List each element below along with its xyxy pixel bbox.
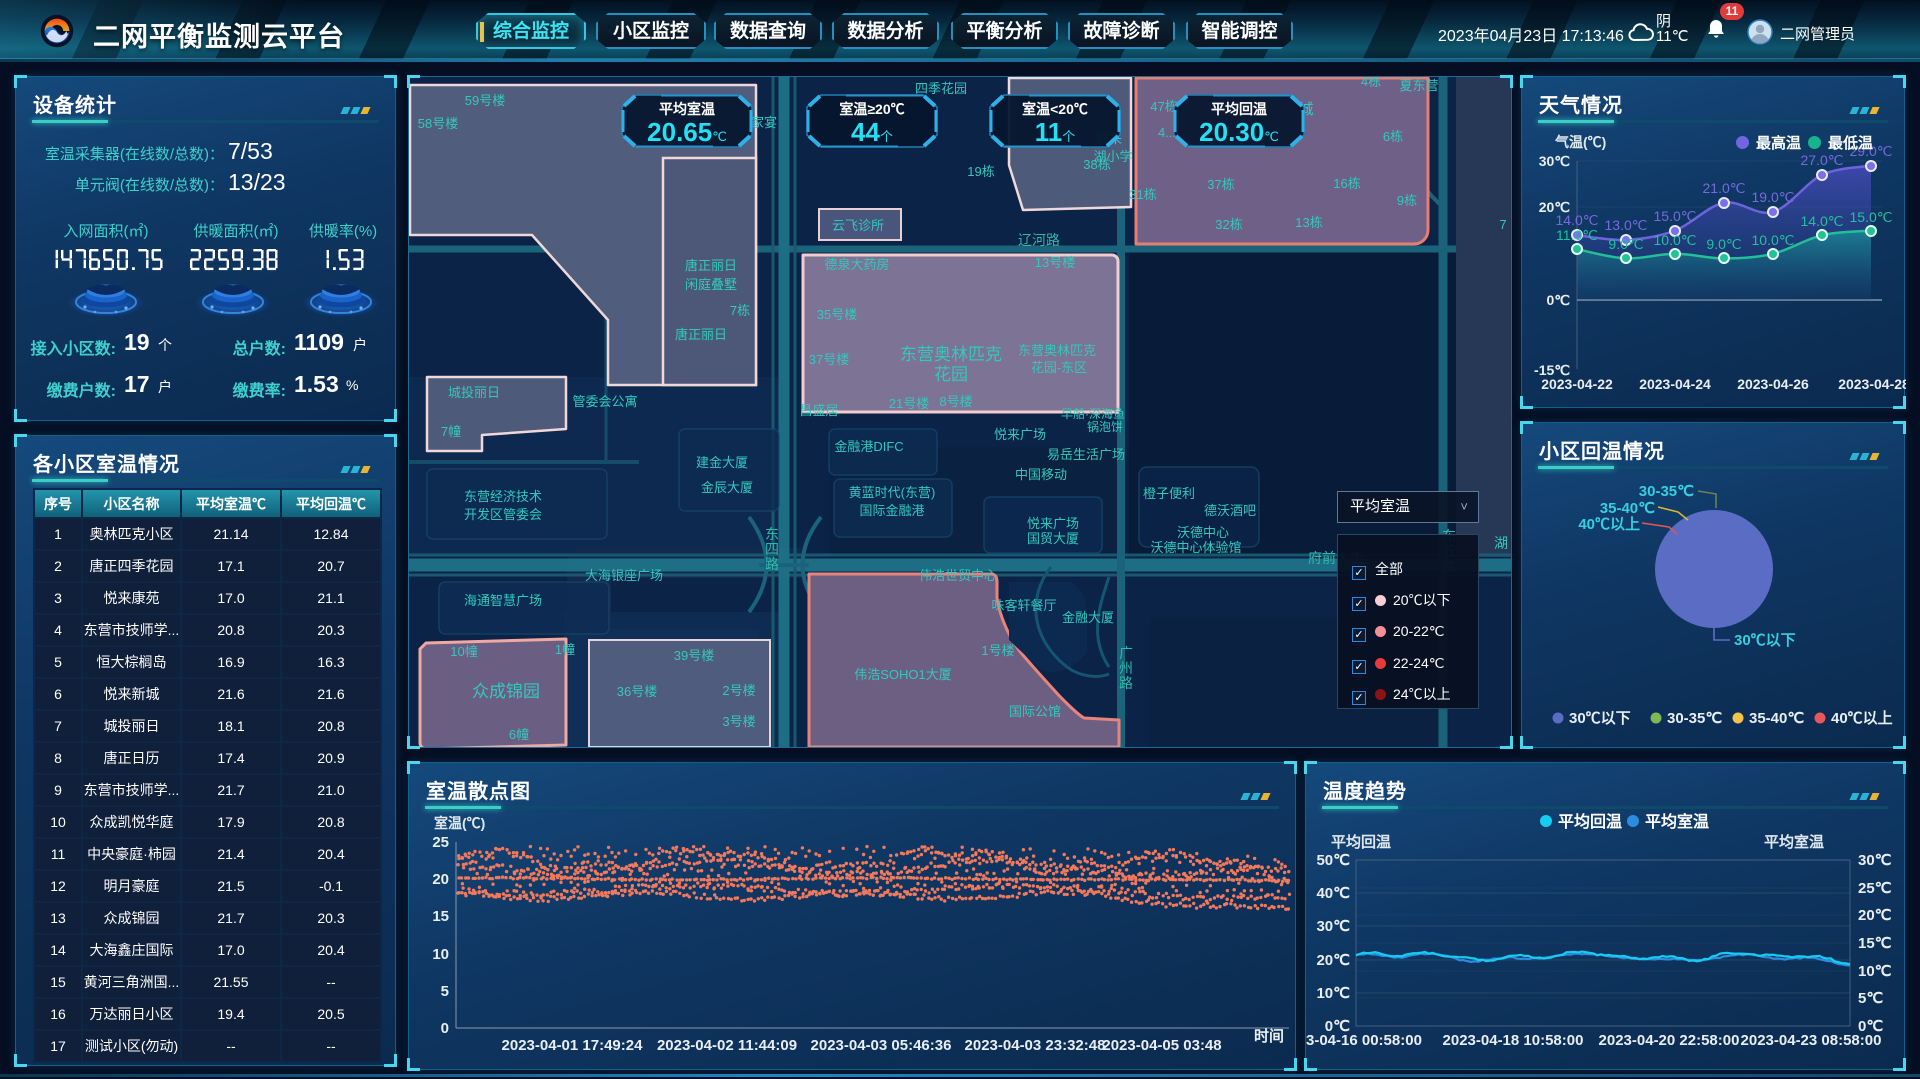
svg-text:湖小学: 湖小学 (1093, 149, 1132, 164)
svg-text:德沃酒吧: 德沃酒吧 (1204, 503, 1256, 518)
svg-text:2号楼: 2号楼 (722, 683, 755, 698)
svg-text:平均回温: 平均回温 (1331, 833, 1391, 851)
svg-text:闲庭叠墅: 闲庭叠墅 (685, 277, 737, 292)
svg-text:金融大厦: 金融大厦 (1062, 610, 1114, 625)
svg-text:国贸大厦: 国贸大厦 (1027, 531, 1079, 546)
svg-text:10: 10 (432, 946, 449, 963)
svg-text:2023-04-28: 2023-04-28 (1838, 376, 1906, 392)
svg-text:夏东营: 夏东营 (1399, 78, 1438, 93)
svg-text:东营奥林匹克: 东营奥林匹克 (900, 345, 1002, 364)
svg-text:开发区管委会: 开发区管委会 (464, 507, 542, 522)
svg-text:唐正丽日: 唐正丽日 (685, 258, 737, 273)
svg-text:平均室温: 平均室温 (1764, 833, 1824, 851)
svg-text:9栋: 9栋 (1397, 193, 1417, 208)
svg-text:19栋: 19栋 (967, 164, 994, 179)
svg-text:35-40℃: 35-40℃ (1600, 500, 1655, 517)
svg-text:15℃: 15℃ (1858, 935, 1892, 952)
svg-text:伟浩SOHO1大厦: 伟浩SOHO1大厦 (854, 667, 952, 682)
svg-text:易岳生活广场: 易岳生活广场 (1047, 447, 1125, 462)
svg-text:15.0℃: 15.0℃ (1654, 208, 1697, 224)
svg-text:唐正丽日: 唐正丽日 (675, 327, 727, 342)
svg-text:2023-04-22: 2023-04-22 (1541, 376, 1613, 392)
svg-text:35号楼: 35号楼 (817, 307, 857, 322)
svg-text:城投丽日: 城投丽日 (448, 385, 500, 400)
svg-text:6栋: 6栋 (1383, 129, 1403, 144)
svg-text:2023-04-18 10:58:00: 2023-04-18 10:58:00 (1443, 1032, 1584, 1049)
svg-text:30-35℃: 30-35℃ (1667, 710, 1722, 727)
svg-text:10.0℃: 10.0℃ (1752, 232, 1795, 248)
svg-text:25: 25 (432, 834, 449, 851)
svg-text:东营奥林匹克: 东营奥林匹克 (1018, 343, 1096, 358)
svg-text:金辰大厦: 金辰大厦 (701, 480, 753, 495)
svg-text:32栋: 32栋 (1215, 217, 1242, 232)
svg-text:东四路: 东四路 (765, 526, 779, 572)
svg-text:大海银座广场: 大海银座广场 (585, 568, 663, 583)
svg-text:21.0℃: 21.0℃ (1703, 180, 1746, 196)
svg-text:59号楼: 59号楼 (465, 93, 505, 108)
svg-text:16栋: 16栋 (1333, 176, 1360, 191)
svg-text:19.0℃: 19.0℃ (1752, 189, 1795, 205)
svg-text:7: 7 (1499, 217, 1506, 232)
svg-text:2023-04-23 08:58:00: 2023-04-23 08:58:00 (1741, 1032, 1882, 1049)
svg-text:9.0℃: 9.0℃ (1608, 236, 1643, 252)
svg-text:花园: 花园 (934, 365, 968, 384)
svg-text:国际金融港: 国际金融港 (859, 503, 924, 518)
svg-text:21号楼: 21号楼 (889, 396, 929, 411)
svg-text:1幢: 1幢 (555, 642, 575, 657)
svg-text:6幢: 6幢 (509, 727, 529, 742)
svg-text:5: 5 (441, 983, 449, 1000)
svg-text:11.0℃: 11.0℃ (1556, 227, 1598, 243)
svg-text:建金大厦: 建金大厦 (696, 455, 748, 470)
svg-text:4栋: 4栋 (1361, 77, 1381, 89)
svg-text:国际公馆: 国际公馆 (1009, 704, 1061, 719)
svg-text:37号楼: 37号楼 (809, 352, 849, 367)
svg-text:3-04-16 00:58:00: 3-04-16 00:58:00 (1306, 1032, 1422, 1049)
svg-text:30℃: 30℃ (1539, 153, 1571, 169)
svg-text:花园-东区: 花园-东区 (1031, 360, 1087, 375)
svg-text:40℃以上: 40℃以上 (1578, 516, 1640, 533)
svg-text:悦来广场: 悦来广场 (994, 427, 1046, 442)
svg-text:20: 20 (432, 871, 449, 888)
svg-text:金融港DIFC: 金融港DIFC (834, 439, 903, 454)
svg-text:7幢: 7幢 (441, 424, 461, 439)
svg-text:2023-04-01 17:49:24: 2023-04-01 17:49:24 (502, 1037, 644, 1054)
svg-text:2023-04-03 23:32:48: 2023-04-03 23:32:48 (965, 1037, 1106, 1054)
svg-text:20℃: 20℃ (1539, 199, 1571, 215)
svg-text:伟浩世贸中心: 伟浩世贸中心 (919, 568, 997, 583)
svg-text:7栋: 7栋 (730, 303, 750, 318)
svg-text:35-40℃: 35-40℃ (1749, 710, 1804, 727)
svg-text:13号楼: 13号楼 (1035, 255, 1075, 270)
svg-text:2023-04-24: 2023-04-24 (1639, 376, 1711, 392)
svg-text:15.0℃: 15.0℃ (1850, 209, 1893, 225)
svg-text:30℃: 30℃ (1316, 918, 1350, 935)
svg-text:30℃以下: 30℃以下 (1569, 710, 1631, 727)
svg-text:锅泡饼: 锅泡饼 (1087, 419, 1123, 434)
svg-text:时间: 时间 (1254, 1027, 1284, 1045)
svg-text:36号楼: 36号楼 (617, 684, 657, 699)
svg-text:2023-04-20 22:58:00: 2023-04-20 22:58:00 (1599, 1032, 1740, 1049)
svg-text:15: 15 (432, 908, 449, 925)
svg-text:2023-04-26: 2023-04-26 (1737, 376, 1809, 392)
svg-text:橙子便利: 橙子便利 (1143, 486, 1195, 501)
svg-text:室温(℃): 室温(℃) (434, 815, 485, 831)
svg-text:悦来广场: 悦来广场 (1027, 516, 1079, 531)
svg-text:3号楼: 3号楼 (722, 714, 755, 729)
svg-text:湖: 湖 (1494, 535, 1508, 551)
svg-text:味客轩餐厅: 味客轩餐厅 (991, 598, 1056, 613)
svg-text:40℃: 40℃ (1316, 885, 1350, 902)
svg-text:0℃: 0℃ (1546, 292, 1570, 308)
svg-text:10幢: 10幢 (450, 644, 477, 659)
svg-text:早船·深海鱼: 早船·深海鱼 (1061, 406, 1125, 421)
svg-text:1号楼: 1号楼 (981, 643, 1014, 658)
svg-text:20℃: 20℃ (1858, 907, 1892, 924)
svg-text:家宴: 家宴 (751, 115, 777, 130)
svg-text:德泉大药房: 德泉大药房 (824, 257, 889, 272)
svg-text:辽河路: 辽河路 (1018, 232, 1060, 248)
svg-text:10℃: 10℃ (1858, 963, 1892, 980)
svg-text:8号楼: 8号楼 (939, 394, 972, 409)
svg-text:2023-04-03 05:46:36: 2023-04-03 05:46:36 (811, 1037, 952, 1054)
svg-text:10℃: 10℃ (1316, 985, 1350, 1002)
svg-text:10.0℃: 10.0℃ (1654, 232, 1697, 248)
svg-text:沃德中心体验馆: 沃德中心体验馆 (1150, 540, 1241, 555)
svg-text:云飞诊所: 云飞诊所 (832, 218, 884, 233)
svg-text:27.0℃: 27.0℃ (1801, 152, 1844, 168)
svg-text:0: 0 (441, 1020, 449, 1037)
svg-text:14.0℃: 14.0℃ (1801, 213, 1844, 229)
svg-text:20℃: 20℃ (1316, 952, 1350, 969)
svg-text:黄蓝时代(东营): 黄蓝时代(东营) (849, 485, 936, 500)
svg-text:中国移动: 中国移动 (1015, 467, 1067, 482)
svg-text:30℃以下: 30℃以下 (1734, 632, 1796, 649)
svg-text:广州路: 广州路 (1119, 645, 1133, 691)
svg-text:58号楼: 58号楼 (418, 116, 458, 131)
svg-text:39号楼: 39号楼 (674, 648, 714, 663)
svg-text:2023-04-02 11:44:09: 2023-04-02 11:44:09 (657, 1037, 797, 1054)
svg-text:31栋: 31栋 (1129, 187, 1156, 202)
svg-text:30℃: 30℃ (1858, 852, 1892, 869)
svg-text:25℃: 25℃ (1858, 880, 1892, 897)
svg-text:海通智慧广场: 海通智慧广场 (464, 593, 542, 608)
svg-text:众成锦园: 众成锦园 (472, 682, 540, 701)
svg-text:昌盛居: 昌盛居 (799, 403, 838, 418)
svg-text:2023-04-05 03:48: 2023-04-05 03:48 (1102, 1037, 1221, 1054)
svg-text:管委会公寓: 管委会公寓 (572, 394, 637, 409)
svg-text:5℃: 5℃ (1858, 990, 1883, 1007)
svg-text:50℃: 50℃ (1316, 852, 1350, 869)
svg-text:东营经济技术: 东营经济技术 (464, 489, 542, 504)
svg-text:13.0℃: 13.0℃ (1605, 217, 1648, 233)
svg-text:平均室温: 平均室温 (1645, 812, 1709, 831)
svg-text:40℃以上: 40℃以上 (1831, 710, 1893, 727)
svg-text:37栋: 37栋 (1207, 177, 1234, 192)
svg-text:沃德中心: 沃德中心 (1177, 525, 1229, 540)
svg-text:30-35℃: 30-35℃ (1639, 483, 1694, 500)
svg-text:13栋: 13栋 (1295, 215, 1322, 230)
svg-text:9.0℃: 9.0℃ (1706, 236, 1741, 252)
svg-text:平均回温: 平均回温 (1558, 812, 1622, 831)
